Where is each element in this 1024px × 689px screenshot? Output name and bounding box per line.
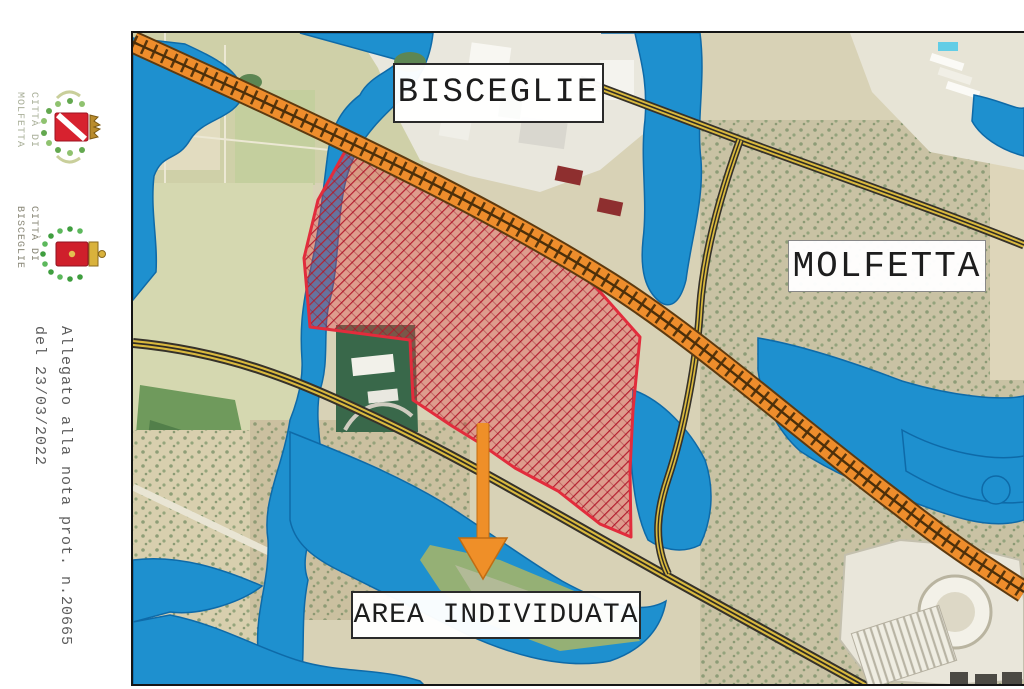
identified-area-label-text: AREA INDIVIDUATA (354, 600, 639, 631)
aerial-map (131, 31, 1024, 686)
bisceglie-coat-label: CITTÀ DI BISCEGLIE (12, 206, 40, 282)
attachment-note-line2: del 23/03/2022 (26, 326, 52, 689)
bisceglie-town-label-text: BISCEGLIE (398, 74, 600, 112)
scanned-map-page: CITTÀ DI MOLFETTA CITTÀ DI (0, 0, 1024, 689)
bisceglie-town-label: BISCEGLIE (393, 63, 604, 123)
molfetta-town-label-text: MOLFETTA (793, 246, 982, 287)
map-canvas (133, 33, 1024, 684)
molfetta-coat-label: CITTÀ DI MOLFETTA (12, 92, 40, 164)
identified-area-label: AREA INDIVIDUATA (351, 591, 641, 639)
attachment-note: Allegato alla nota prot. n.20665 del 23/… (26, 326, 78, 689)
left-margin: CITTÀ DI MOLFETTA CITTÀ DI (0, 0, 131, 689)
bisceglie-coat-of-arms-icon (30, 214, 110, 294)
attachment-note-line1: Allegato alla nota prot. n.20665 (52, 326, 78, 689)
molfetta-town-label: MOLFETTA (788, 240, 986, 292)
